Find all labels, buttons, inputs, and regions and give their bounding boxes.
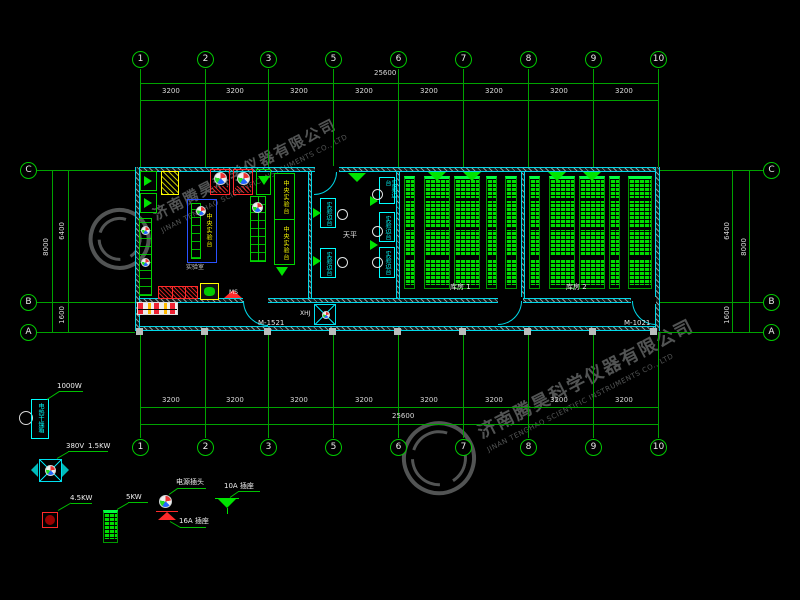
dim-right-overall: 8000 [741,238,748,256]
dim-right-b-a: 1600 [724,306,731,324]
grid-line-vertical [528,332,529,438]
axis-bubble-right-A: A [763,324,780,341]
lab-room-label: 实验室 [186,265,204,271]
grid-line-vertical [140,332,141,438]
air-outlet-icon [313,256,321,266]
axis-bubble-bottom-6: 6 [390,439,407,456]
stool [337,209,348,220]
storage-rack [628,176,652,289]
axis-bubble-top-8: 8 [520,51,537,68]
socket-16a-icon [158,512,176,520]
grid-line-vertical [333,332,334,438]
column-marker [650,328,657,335]
dim-bay: 3200 [550,88,568,95]
column-marker [264,328,271,335]
axis-bubble-right-B: B [763,294,780,311]
air-outlet-icon [370,240,378,250]
side-bench-label: 实验边台 [325,252,331,276]
oven-power-label: 1000W [57,383,82,390]
grid-line-horizontal [37,332,135,333]
wall-partition-3 [521,172,525,298]
dim-bay: 3200 [290,397,308,404]
axis-bubble-left-A: A [20,324,37,341]
axis-bubble-left-B: B [20,294,37,311]
leader-line [178,488,206,489]
side-bench-label: 实验边台 [384,251,390,275]
dim-total-bottom: 25600 [392,413,414,420]
leader-line [58,503,71,511]
plug-label: 电源插头 [176,479,204,486]
air-outlet-icon [548,172,566,181]
grid-line-vertical [593,332,594,438]
central-bench-label: 中央实验台 [282,226,288,261]
socket-10a-stem [227,508,228,514]
exhaust-unit [233,169,253,195]
stool [372,226,383,237]
axis-bubble-right-C: C [763,162,780,179]
storage-rack [579,176,605,289]
equipment-fan-icon [141,258,150,267]
central-bench-label: 中央实验台 [282,180,288,215]
door-code-left: M-1521 [258,320,284,327]
equipment-box [256,169,271,195]
leader-line [230,491,239,498]
dim-bay: 3200 [290,88,308,95]
dim-bay: 3200 [162,88,180,95]
side-bench-cabinet: 实验边台 [320,248,336,278]
air-outlet-icon [428,172,446,181]
heater-symbol [42,512,58,528]
column-marker [329,328,336,335]
room1-label: 库房 1 [450,284,471,291]
dim-bay: 3200 [550,397,568,404]
dimension-line [140,407,659,408]
heater-bank [158,286,198,299]
dim-bay: 3200 [226,88,244,95]
grid-line-horizontal [660,332,763,333]
equipment-fan-icon [252,202,263,213]
storage-rack [424,176,450,289]
dim-bay: 3200 [485,88,503,95]
axis-bubble-bottom-2: 2 [197,439,214,456]
room2-label: 库房 2 [566,284,587,291]
dim-bay: 3200 [485,397,503,404]
side-bench-cabinet: 实验边台 [320,198,336,228]
equipment-tag: MS [229,290,238,296]
axis-bubble-bottom-9: 9 [585,439,602,456]
axis-bubble-bottom-10: 10 [650,439,667,456]
axis-bubble-bottom-5: 5 [325,439,342,456]
axis-bubble-top-1: 1 [132,51,149,68]
fan-wing-icon [31,463,38,477]
leader-line [59,391,83,392]
stool [372,257,383,268]
axis-bubble-top-5: 5 [325,51,342,68]
equipment-fan-icon [141,226,150,235]
dim-bay: 3200 [226,397,244,404]
column-marker [136,328,143,335]
dimension-line [52,170,53,332]
air-outlet-icon [313,208,321,218]
column-marker [524,328,531,335]
corridor-fan-label: XHJ [300,311,310,317]
socket-10a-label: 10A 插座 [224,483,254,490]
storage-rack [454,176,480,289]
dimension-line [749,170,750,332]
door-code-right: M-1021 [624,320,650,327]
dim-bay: 3200 [420,88,438,95]
dim-bay: 3200 [355,88,373,95]
dim-bay: 3200 [615,88,633,95]
grid-line-vertical [463,332,464,438]
leader-line [68,451,108,452]
air-outlet-icon [463,172,481,181]
axis-bubble-left-C: C [20,162,37,179]
dim-left-b-a: 1600 [59,306,66,324]
fan-wing-icon [62,463,69,477]
leader-line [47,391,60,400]
leader-line [238,491,260,492]
column-marker [394,328,401,335]
axis-bubble-top-7: 7 [455,51,472,68]
central-bench-outline: 中央实验台 [187,199,217,263]
power-plug-icon [159,495,172,508]
axis-bubble-bottom-8: 8 [520,439,537,456]
heater-power-label: 4.5KW [70,495,92,502]
central-bench-label: 中央实验台 [205,213,211,248]
grid-line-horizontal [660,170,763,171]
equipment-box [140,171,157,191]
axis-bubble-top-10: 10 [650,51,667,68]
socket-10a-line [215,498,239,499]
dim-right-c-b: 6400 [724,222,731,240]
socket-16a-label: 16A 插座 [179,518,209,525]
rack-symbol [103,510,118,543]
fan-voltage-label: 380V [66,443,84,450]
fan-power-label: 1.5KW [88,443,110,450]
dim-bay: 3200 [355,397,373,404]
air-outlet-icon [276,267,288,276]
leader-line [169,488,179,495]
fume-cabinet [161,171,179,195]
storage-rack [505,176,517,289]
dim-total-top: 25600 [374,70,396,77]
air-outlet-icon [370,196,378,206]
air-outlet-icon [348,173,366,182]
column-marker [201,328,208,335]
exhaust-unit [210,169,230,195]
balance-room-label: 天平 [343,232,357,239]
axis-bubble-top-2: 2 [197,51,214,68]
storage-rack [609,176,620,289]
column-marker [459,328,466,335]
grid-line-vertical [205,332,206,438]
grid-line-vertical [658,332,659,438]
grid-line-vertical [268,332,269,438]
column-marker [589,328,596,335]
dim-bay: 3200 [420,397,438,404]
fan-symbol [39,459,62,482]
dim-bay: 3200 [162,397,180,404]
axis-bubble-bottom-1: 1 [132,439,149,456]
leader-line [71,503,92,504]
dimension-line [140,83,659,84]
axis-bubble-bottom-7: 7 [455,439,472,456]
storage-rack [486,176,497,289]
side-bench-label: 实验边台 [384,216,390,240]
socket-16a-line [156,511,178,512]
axis-bubble-top-6: 6 [390,51,407,68]
storage-rack [404,176,415,289]
cad-floor-plan-drawing: 济南腾昊科学仪器有限公司 JINAN TENGHAO SCIENTIFIC IN… [0,0,800,600]
dim-left-overall: 8000 [43,238,50,256]
leader-line [128,502,148,503]
axis-bubble-top-9: 9 [585,51,602,68]
dimension-line [140,424,659,425]
drawing-layer: 1 2 3 5 6 7 8 9 10 25600 3200 3200 3200 … [0,0,800,600]
leader-line [180,527,206,528]
leader-line [117,503,129,510]
door-swing-arc [498,301,522,325]
axis-bubble-top-3: 3 [260,51,277,68]
dim-left-c-b: 6400 [59,222,66,240]
dim-bay: 3200 [615,397,633,404]
wall-partition-1 [308,172,312,298]
socket-10a-icon [218,499,236,508]
oven-name: 电热干燥箱 [37,403,43,433]
side-bench-label: 实验边台 [384,180,396,203]
dimension-line [68,170,69,332]
door-swing-arc [314,172,337,195]
grid-line-vertical [398,332,399,438]
corridor-fan-unit [314,304,336,325]
storage-rack [529,176,540,289]
storage-rack [549,176,575,289]
dimension-line [732,170,733,332]
oven-symbol: 电热干燥箱 [31,399,49,439]
equipment-box [140,193,157,213]
equipment-unit [200,283,219,300]
central-bench-tall: 中央实验台 中央实验台 [274,173,295,265]
rack-power-label: 5KW [126,494,142,501]
leader-line [57,452,69,459]
axis-bubble-bottom-3: 3 [260,439,277,456]
stool [337,257,348,268]
grid-line-horizontal [660,302,763,303]
side-bench-label: 实验边台 [325,202,331,226]
air-outlet-icon [583,172,601,181]
dimension-line [140,100,659,101]
sink-unit [137,302,178,315]
